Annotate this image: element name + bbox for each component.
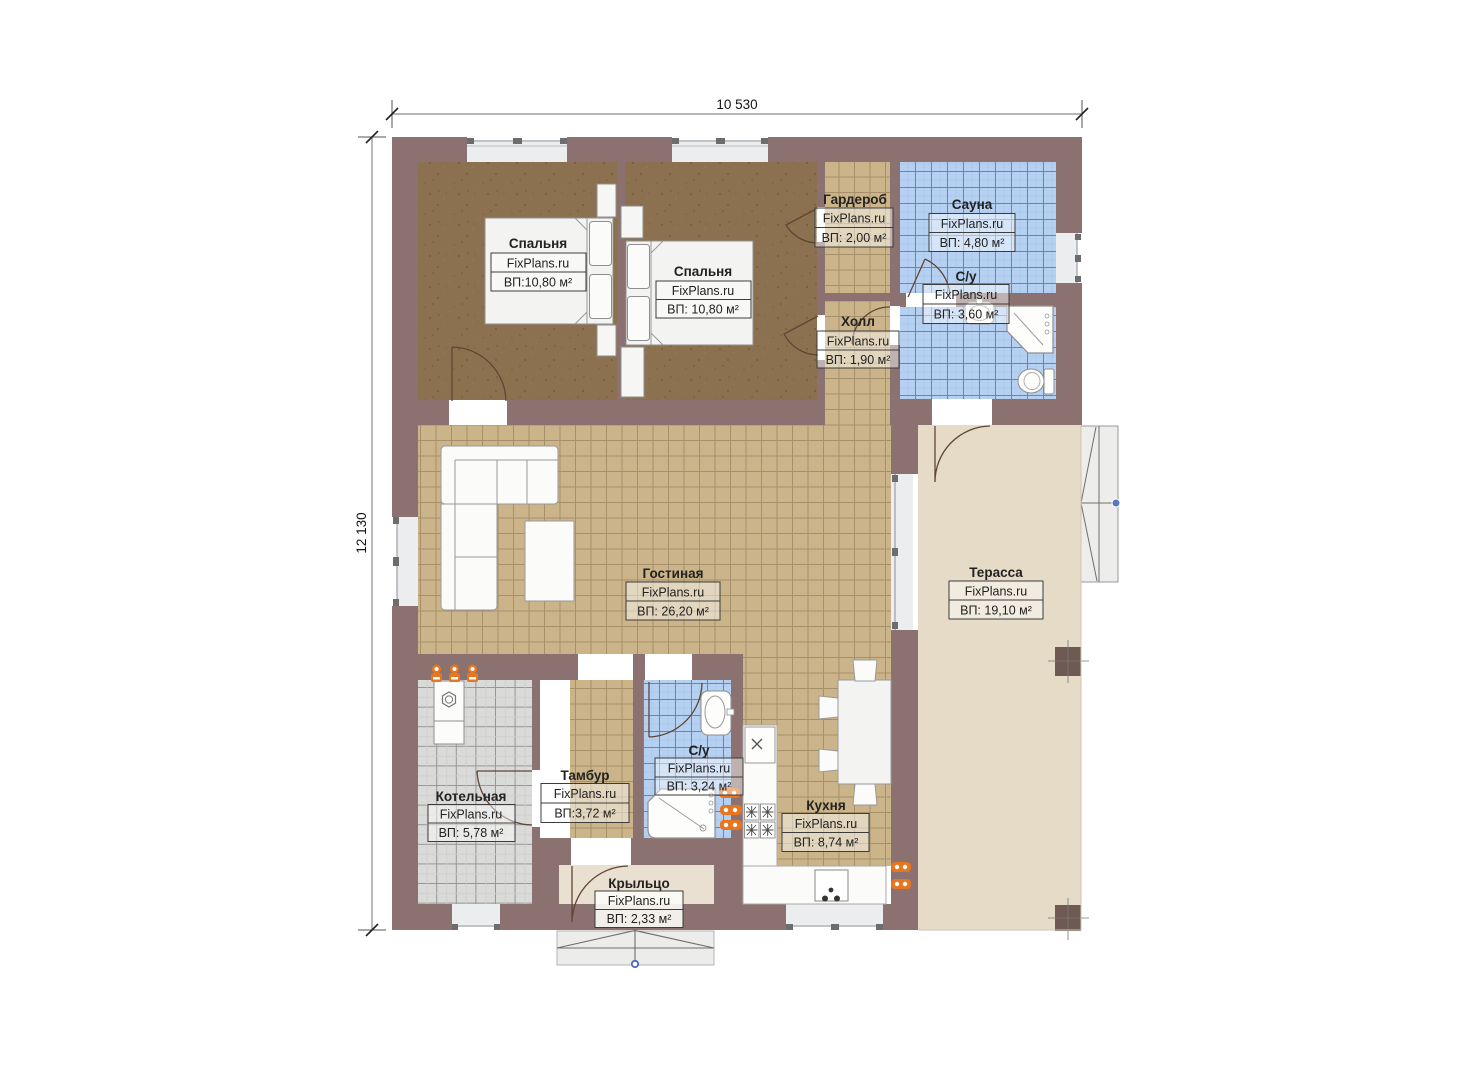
svg-text:FixPlans.ru: FixPlans.ru bbox=[827, 335, 890, 349]
svg-text:ВП: 3,24 м²: ВП: 3,24 м² bbox=[667, 780, 732, 794]
svg-text:FixPlans.ru: FixPlans.ru bbox=[941, 217, 1004, 231]
svg-text:ВП: 2,00 м²: ВП: 2,00 м² bbox=[822, 231, 887, 245]
svg-text:FixPlans.ru: FixPlans.ru bbox=[668, 762, 731, 776]
svg-text:ВП:10,80 м²: ВП:10,80 м² bbox=[504, 276, 572, 290]
svg-text:FixPlans.ru: FixPlans.ru bbox=[672, 284, 735, 298]
svg-text:FixPlans.ru: FixPlans.ru bbox=[608, 894, 671, 908]
svg-text:Терасса: Терасса bbox=[969, 565, 1023, 580]
svg-text:FixPlans.ru: FixPlans.ru bbox=[440, 808, 503, 822]
svg-text:Котельная: Котельная bbox=[436, 789, 507, 804]
svg-text:FixPlans.ru: FixPlans.ru bbox=[642, 586, 705, 600]
svg-text:ВП: 19,10 м²: ВП: 19,10 м² bbox=[960, 604, 1032, 618]
svg-text:FixPlans.ru: FixPlans.ru bbox=[795, 817, 858, 831]
svg-text:С/у: С/у bbox=[688, 743, 710, 758]
svg-text:Крыльцо: Крыльцо bbox=[608, 876, 669, 891]
svg-text:Гардероб: Гардероб bbox=[823, 192, 887, 207]
svg-text:FixPlans.ru: FixPlans.ru bbox=[507, 257, 570, 271]
svg-text:FixPlans.ru: FixPlans.ru bbox=[935, 288, 998, 302]
svg-text:Спальня: Спальня bbox=[674, 264, 732, 279]
svg-text:FixPlans.ru: FixPlans.ru bbox=[554, 787, 617, 801]
svg-text:Кухня: Кухня bbox=[806, 798, 845, 813]
svg-text:ВП: 5,78 м²: ВП: 5,78 м² bbox=[439, 826, 504, 840]
svg-text:С/у: С/у bbox=[955, 269, 977, 284]
svg-text:Гостиная: Гостиная bbox=[642, 566, 703, 581]
svg-text:ВП: 8,74 м²: ВП: 8,74 м² bbox=[794, 836, 859, 850]
svg-text:ВП: 1,90 м²: ВП: 1,90 м² bbox=[826, 353, 891, 367]
svg-text:ВП: 10,80 м²: ВП: 10,80 м² bbox=[667, 303, 739, 317]
svg-text:ВП: 4,80 м²: ВП: 4,80 м² bbox=[940, 236, 1005, 250]
svg-text:ВП: 26,20 м²: ВП: 26,20 м² bbox=[637, 605, 709, 619]
svg-text:Холл: Холл bbox=[841, 314, 875, 329]
svg-text:ВП: 3,60 м²: ВП: 3,60 м² bbox=[934, 308, 999, 322]
svg-text:ВП: 2,33 м²: ВП: 2,33 м² bbox=[607, 912, 672, 926]
svg-text:FixPlans.ru: FixPlans.ru bbox=[965, 585, 1028, 599]
svg-text:10 530: 10 530 bbox=[716, 97, 757, 112]
svg-text:12 130: 12 130 bbox=[354, 512, 369, 553]
svg-text:Спальня: Спальня bbox=[509, 236, 567, 251]
svg-text:Сауна: Сауна bbox=[952, 197, 993, 212]
svg-text:Тамбур: Тамбур bbox=[561, 768, 610, 783]
svg-text:ВП:3,72 м²: ВП:3,72 м² bbox=[554, 807, 615, 821]
svg-text:FixPlans.ru: FixPlans.ru bbox=[823, 212, 886, 226]
